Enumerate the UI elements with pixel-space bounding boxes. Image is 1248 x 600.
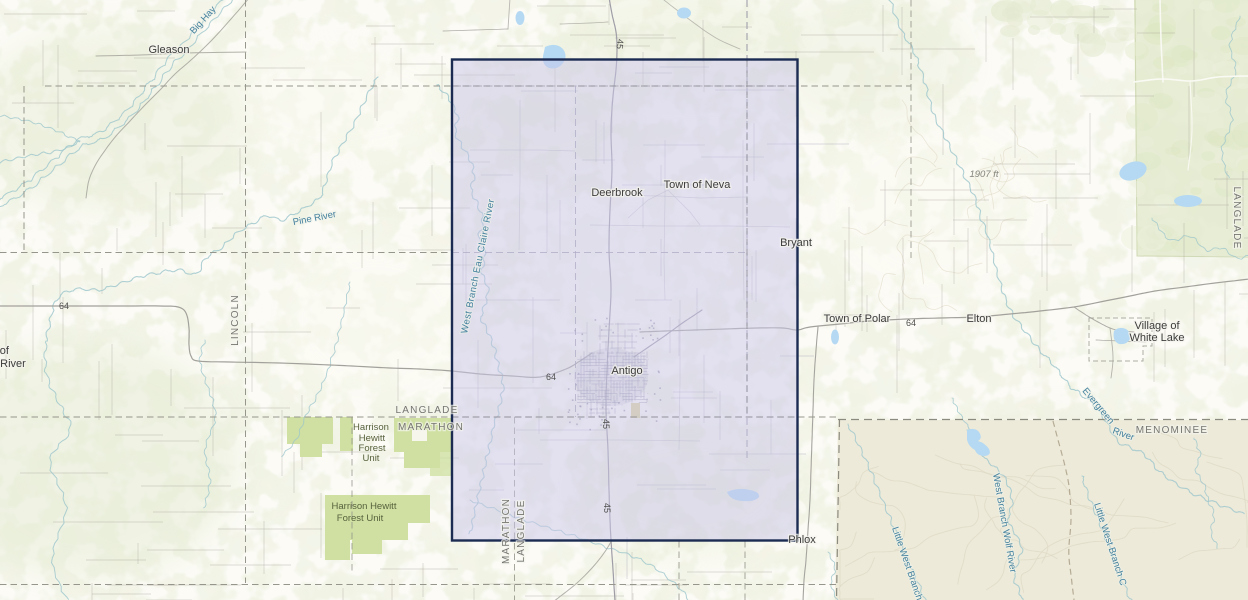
- svg-text:Town of: Town of: [0, 345, 10, 357]
- svg-text:LANGLADE: LANGLADE: [516, 500, 527, 563]
- svg-text:MENOMINEE: MENOMINEE: [1136, 425, 1208, 436]
- svg-text:White Lake: White Lake: [1129, 332, 1184, 344]
- svg-text:64: 64: [546, 372, 556, 382]
- svg-text:Gleason: Gleason: [149, 44, 190, 56]
- svg-text:LANGLADE: LANGLADE: [396, 405, 459, 416]
- svg-text:Bryant: Bryant: [780, 237, 812, 249]
- svg-text:Town of Polar: Town of Polar: [824, 313, 891, 325]
- svg-text:Town of Neva: Town of Neva: [664, 179, 732, 191]
- svg-text:River: River: [0, 358, 26, 370]
- svg-text:Elton: Elton: [966, 313, 991, 325]
- svg-text:1907 ft: 1907 ft: [969, 169, 998, 180]
- svg-text:Deerbrook: Deerbrook: [591, 187, 643, 199]
- svg-text:45: 45: [601, 419, 611, 429]
- svg-text:Village of: Village of: [1134, 320, 1180, 332]
- svg-text:Unit: Unit: [363, 453, 380, 464]
- svg-text:Harrison: Harrison: [353, 422, 389, 433]
- svg-text:45: 45: [615, 39, 626, 50]
- svg-text:64: 64: [906, 318, 916, 328]
- svg-text:Phlox: Phlox: [788, 534, 816, 546]
- svg-text:45: 45: [602, 503, 612, 513]
- svg-text:MARATHON: MARATHON: [398, 422, 464, 433]
- svg-text:Harrison Hewitt: Harrison Hewitt: [332, 501, 397, 512]
- svg-text:LINCOLN: LINCOLN: [230, 294, 241, 346]
- svg-text:MARATHON: MARATHON: [501, 498, 512, 564]
- svg-text:Forest Unit: Forest Unit: [337, 513, 384, 524]
- svg-text:LANGLADE: LANGLADE: [1231, 187, 1242, 250]
- svg-text:Antigo: Antigo: [611, 365, 642, 377]
- svg-text:64: 64: [59, 301, 69, 311]
